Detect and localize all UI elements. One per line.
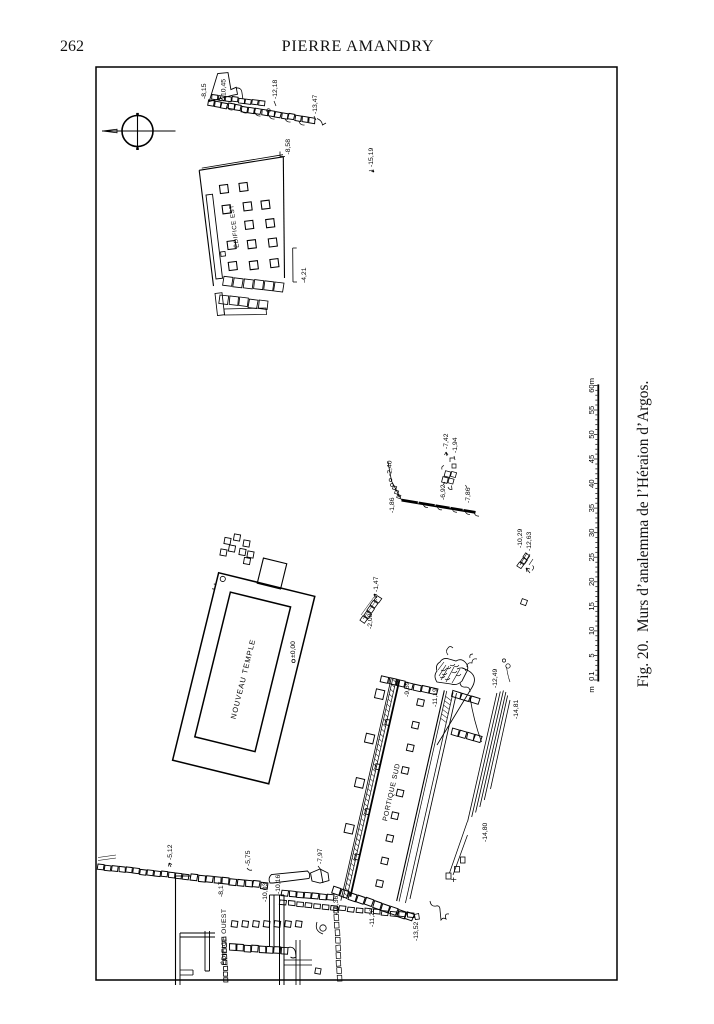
svg-text:45: 45 — [587, 455, 596, 463]
svg-text:0: 0 — [587, 677, 596, 681]
svg-text:-10,16: -10,16 — [275, 875, 282, 894]
svg-text:±0,00: ±0,00 — [290, 641, 297, 658]
svg-text:-15,19: -15,19 — [368, 148, 375, 167]
svg-text:-8,17: -8,17 — [218, 881, 225, 897]
svg-text:-5,75: -5,75 — [245, 850, 252, 866]
svg-text:-11,20: -11,20 — [369, 908, 376, 927]
svg-text:-2,08: -2,08 — [367, 613, 374, 629]
svg-text:ÉDIFICE EST: ÉDIFICE EST — [228, 204, 241, 248]
svg-text:-13,52: -13,52 — [413, 922, 420, 941]
svg-text:10: 10 — [587, 627, 596, 635]
svg-text:-12,49: -12,49 — [492, 669, 499, 688]
svg-text:50: 50 — [587, 430, 596, 438]
svg-text:ÉDIFICE OUEST: ÉDIFICE OUEST — [219, 909, 228, 966]
svg-text:60m: 60m — [587, 378, 596, 393]
svg-text:-10,03: -10,03 — [262, 883, 269, 902]
svg-text:35: 35 — [587, 504, 596, 512]
svg-text:-2,40: -2,40 — [387, 460, 394, 476]
svg-text:Fig. 20. Murs d’analemma de l: Fig. 20. Murs d’analemma de l’Héraion d’… — [635, 381, 652, 688]
svg-text:-11,19: -11,19 — [432, 688, 439, 707]
svg-text:-7,97: -7,97 — [317, 848, 324, 864]
svg-text:-12,63: -12,63 — [526, 532, 533, 551]
svg-text:PIERRE AMANDRY: PIERRE AMANDRY — [282, 37, 435, 55]
svg-text:10,45: 10,45 — [221, 79, 228, 96]
svg-text:-7,42: -7,42 — [443, 433, 450, 449]
svg-text:-13,47: -13,47 — [312, 95, 319, 114]
svg-text:-12,18: -12,18 — [272, 80, 279, 99]
svg-text:-5,12: -5,12 — [167, 844, 174, 860]
svg-text:-9,69: -9,69 — [404, 681, 411, 697]
svg-text:30: 30 — [587, 528, 596, 536]
svg-text:-4,21: -4,21 — [301, 267, 308, 283]
svg-text:-7,86: -7,86 — [465, 487, 472, 503]
svg-text:55: 55 — [587, 406, 596, 414]
svg-text:-8,15: -8,15 — [201, 83, 208, 99]
svg-text:15: 15 — [587, 602, 596, 610]
svg-text:5: 5 — [587, 653, 596, 657]
svg-text:-6,92: -6,92 — [440, 484, 447, 500]
svg-text:1: 1 — [587, 671, 596, 675]
svg-text:-1,47: -1,47 — [373, 576, 380, 592]
svg-text:20: 20 — [587, 578, 596, 586]
svg-text:-14,81: -14,81 — [513, 700, 520, 719]
svg-text:-10,29: -10,29 — [517, 529, 524, 548]
svg-text:262: 262 — [60, 38, 84, 55]
svg-text:-1,94: -1,94 — [452, 437, 459, 453]
svg-text:-1,86: -1,86 — [389, 497, 396, 513]
svg-text:25: 25 — [587, 553, 596, 561]
svg-text:-14,80: -14,80 — [482, 823, 489, 842]
svg-text:NOUVEAU TEMPLE: NOUVEAU TEMPLE — [229, 638, 258, 720]
svg-text:-8,58: -8,58 — [285, 139, 292, 155]
svg-text:40: 40 — [587, 479, 596, 487]
svg-text:m: m — [587, 686, 596, 692]
